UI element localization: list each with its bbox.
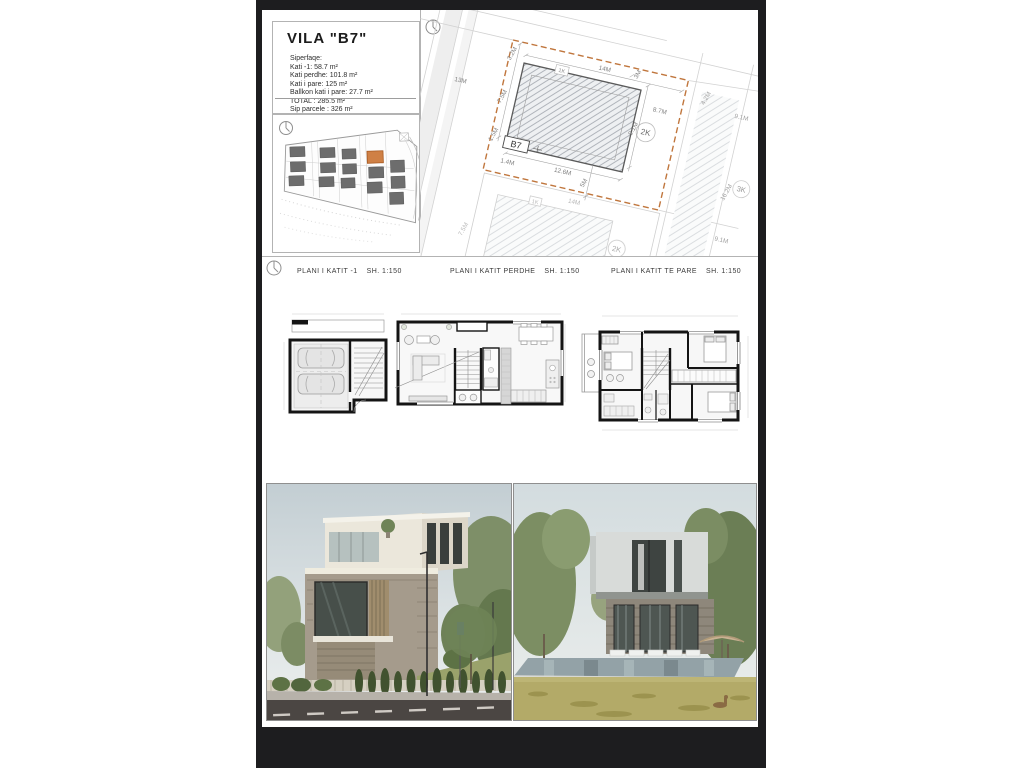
page-title: VILA "B7" (287, 30, 367, 47)
north-arrow-icon (264, 258, 284, 278)
site-plan-drawing: 14M 3.2M 3M 7.5M 1.5M 9.1M 8.7M 12.6M 1.… (420, 10, 758, 256)
exterior-render-garden (513, 483, 757, 721)
area-line: Kati -1: 58.7 m² (290, 64, 373, 73)
subdivision-map (273, 115, 419, 252)
section-divider-horizontal (262, 256, 758, 257)
area-line: Kati perdhe: 101.8 m² (290, 72, 373, 81)
floor-plan-first (580, 310, 756, 465)
dim-label: 16.2M (719, 183, 734, 202)
north-arrow-icon (280, 122, 293, 135)
exterior-render-street (266, 483, 512, 721)
pool-loungers (610, 650, 700, 656)
floor-plan-label-2: PLANI I KATIT PERDHESH. 1:150 (450, 268, 580, 275)
dim-label: 9.1M (714, 235, 729, 245)
lawn (514, 677, 756, 720)
total-divider (275, 98, 416, 99)
viewer-letterbox: VILA "B7" Siperfaqe: Kati -1: 58.7 m² Ka… (256, 0, 766, 768)
north-arrow-icon (426, 20, 440, 34)
highlighted-lot-b7 (367, 151, 383, 164)
area-summary: Siperfaqe: Kati -1: 58.7 m² Kati perdhe:… (290, 55, 373, 115)
floor-plan-ground (395, 310, 567, 462)
floor-plan-basement (280, 310, 398, 462)
villa-garden-facade (590, 532, 714, 654)
viewer-canvas: VILA "B7" Siperfaqe: Kati -1: 58.7 m² Ka… (0, 0, 1024, 768)
floor-plan-label-1: PLANI I KATIT -1SH. 1:150 (297, 268, 402, 275)
dim-label: 14M (567, 198, 581, 208)
garage-door (317, 642, 375, 679)
project-info-box: VILA "B7" Siperfaqe: Kati -1: 58.7 m² Ka… (272, 21, 420, 114)
area-line: Kati i pare: 125 m² (290, 81, 373, 90)
dim-label: 7.5M (457, 222, 470, 238)
floor-plan-label-3: PLANI I KATIT TE PARESH. 1:150 (611, 268, 741, 275)
area-line: Ballkon kati i pare: 27.7 m² (290, 89, 373, 98)
subdivision-map-box (272, 114, 420, 253)
balcony (582, 334, 600, 392)
dim-label: 9.1M (734, 113, 749, 123)
area-heading: Siperfaqe: (290, 55, 373, 64)
architecture-sheet: VILA "B7" Siperfaqe: Kati -1: 58.7 m² Ka… (262, 10, 758, 727)
